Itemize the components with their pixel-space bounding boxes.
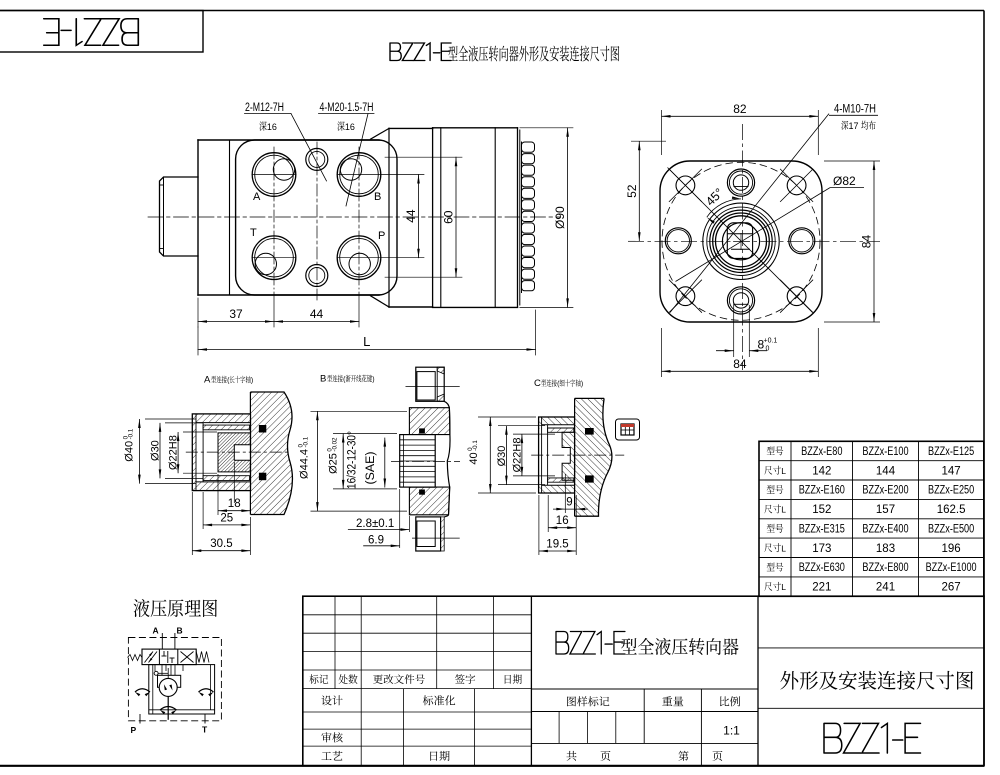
- svg-text:A: A: [204, 375, 211, 386]
- svg-text:6.9: 6.9: [368, 535, 384, 547]
- svg-text:84: 84: [860, 235, 874, 249]
- svg-text:241: 241: [876, 582, 895, 594]
- svg-text:4-M20-1.5-7H: 4-M20-1.5-7H: [320, 102, 374, 114]
- svg-text:L: L: [781, 543, 786, 553]
- svg-text:44: 44: [310, 307, 324, 321]
- svg-text:Ø25: Ø25: [328, 453, 340, 474]
- svg-text:84: 84: [733, 357, 747, 371]
- svg-text:BZZx-E800: BZZx-E800: [862, 562, 908, 574]
- svg-text:T: T: [250, 227, 257, 239]
- svg-text:BZZx-E500: BZZx-E500: [928, 524, 974, 536]
- svg-text:157: 157: [876, 504, 895, 516]
- svg-text:Ø82: Ø82: [833, 174, 856, 188]
- svg-text:): ): [581, 381, 583, 388]
- svg-text:37: 37: [229, 307, 243, 321]
- svg-text:BZZx-E250: BZZx-E250: [928, 485, 974, 497]
- svg-text:B: B: [374, 191, 381, 203]
- svg-text:44: 44: [404, 209, 418, 223]
- svg-text:Ø90: Ø90: [553, 206, 567, 229]
- svg-text:-0.1: -0.1: [128, 428, 135, 439]
- svg-text:142: 142: [812, 465, 831, 477]
- svg-text:40: 40: [468, 452, 480, 464]
- svg-text:L: L: [781, 466, 786, 476]
- svg-text:267: 267: [942, 582, 961, 594]
- svg-text:A: A: [253, 191, 261, 203]
- svg-text:Ø40: Ø40: [124, 441, 136, 462]
- svg-text:196: 196: [942, 543, 961, 555]
- svg-text:B: B: [320, 374, 326, 385]
- svg-text:16/32-12-30°: 16/32-12-30°: [347, 431, 359, 489]
- svg-text:30.5: 30.5: [210, 538, 232, 550]
- svg-text:16: 16: [345, 122, 355, 132]
- svg-text:18: 18: [228, 498, 241, 510]
- svg-text:2-M12-7H: 2-M12-7H: [245, 102, 284, 114]
- svg-text:): ): [251, 378, 253, 385]
- svg-text:BZZx-E200: BZZx-E200: [862, 485, 908, 497]
- svg-text:(SAE): (SAE): [365, 451, 377, 484]
- svg-text:17: 17: [849, 121, 859, 131]
- svg-text:52: 52: [625, 184, 639, 198]
- svg-text:16: 16: [556, 515, 569, 527]
- svg-text:BZZx-E1000: BZZx-E1000: [926, 562, 977, 574]
- svg-text:Ø22H8: Ø22H8: [168, 435, 180, 470]
- svg-text:Ø22H8: Ø22H8: [511, 438, 523, 473]
- svg-text:BZZx-E160: BZZx-E160: [799, 485, 845, 497]
- svg-text:82: 82: [733, 102, 747, 116]
- svg-text:147: 147: [942, 465, 961, 477]
- svg-text:Ø44.4: Ø44.4: [299, 449, 311, 479]
- svg-text:L: L: [781, 505, 786, 515]
- svg-text:162.5: 162.5: [937, 504, 966, 516]
- svg-text:BZZx-E100: BZZx-E100: [862, 446, 908, 458]
- svg-text:B: B: [177, 626, 183, 636]
- svg-text:25: 25: [220, 512, 233, 524]
- svg-text:2.8±0.1: 2.8±0.1: [356, 518, 394, 530]
- svg-text:144: 144: [876, 465, 896, 477]
- svg-text:19.5: 19.5: [546, 539, 568, 551]
- svg-text:+0.1: +0.1: [764, 338, 778, 345]
- svg-text:Ø30: Ø30: [150, 440, 162, 461]
- svg-text:L: L: [363, 334, 370, 349]
- svg-text:BZZx-E125: BZZx-E125: [928, 446, 974, 458]
- svg-text:4-M10-7H: 4-M10-7H: [834, 104, 876, 116]
- svg-text:-0.1: -0.1: [472, 440, 479, 451]
- svg-text:P: P: [378, 230, 385, 242]
- svg-text:A: A: [153, 626, 159, 636]
- svg-text:BZZx-E315: BZZx-E315: [799, 524, 845, 536]
- svg-text:173: 173: [812, 543, 831, 555]
- svg-text:BZZx-E80: BZZx-E80: [801, 446, 842, 458]
- svg-text:-0.1: -0.1: [303, 436, 310, 447]
- svg-text:T: T: [202, 725, 208, 735]
- svg-text:16: 16: [267, 122, 277, 132]
- svg-text:1:1: 1:1: [723, 724, 740, 738]
- svg-text:-0.02: -0.02: [332, 437, 339, 452]
- svg-text:L: L: [781, 582, 786, 592]
- svg-text:BZZx-E630: BZZx-E630: [799, 562, 845, 574]
- svg-text:): ): [372, 377, 374, 384]
- svg-text:P: P: [131, 725, 137, 735]
- svg-text:0: 0: [766, 346, 770, 353]
- svg-text:Ø30: Ø30: [496, 446, 508, 467]
- svg-text:183: 183: [876, 543, 895, 555]
- svg-text:221: 221: [812, 582, 831, 594]
- svg-text:152: 152: [812, 504, 831, 516]
- svg-text:C: C: [534, 378, 541, 389]
- svg-text:60: 60: [442, 210, 456, 224]
- svg-text:BZZx-E400: BZZx-E400: [862, 524, 908, 536]
- svg-text:9: 9: [566, 497, 572, 509]
